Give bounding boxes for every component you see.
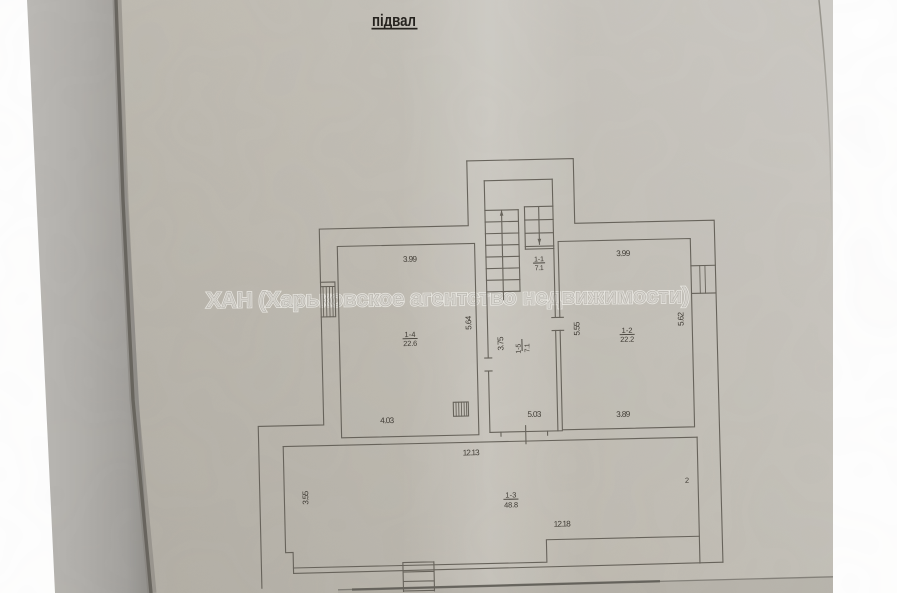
svg-text:ХАН (Харьковское агентство нед: ХАН (Харьковское агентство недвижимости) (206, 283, 689, 312)
svg-text:7.1: 7.1 (524, 343, 531, 352)
svg-text:1-4: 1-4 (404, 330, 415, 339)
svg-text:12.18: 12.18 (554, 519, 572, 528)
svg-text:2: 2 (685, 476, 689, 485)
svg-text:12.13: 12.13 (463, 448, 481, 457)
svg-text:1-1: 1-1 (534, 256, 544, 263)
svg-text:48.8: 48.8 (504, 500, 518, 509)
svg-text:1-2: 1-2 (621, 326, 632, 335)
svg-text:5.55: 5.55 (572, 321, 581, 336)
svg-text:5.62: 5.62 (676, 311, 685, 326)
svg-text:3.55: 3.55 (301, 490, 310, 505)
svg-text:4.03: 4.03 (380, 416, 395, 425)
svg-text:3.89: 3.89 (616, 410, 631, 419)
svg-text:3.99: 3.99 (403, 255, 418, 264)
svg-text:22.6: 22.6 (403, 339, 417, 348)
svg-text:3.99: 3.99 (616, 249, 631, 258)
svg-text:підвал: підвал (372, 12, 416, 30)
svg-text:7.1: 7.1 (535, 265, 544, 272)
svg-text:1-3: 1-3 (505, 490, 516, 499)
svg-text:3.75: 3.75 (496, 336, 505, 351)
svg-text:5.64: 5.64 (464, 315, 473, 330)
svg-text:5.03: 5.03 (527, 410, 542, 419)
svg-text:22.2: 22.2 (620, 335, 634, 344)
